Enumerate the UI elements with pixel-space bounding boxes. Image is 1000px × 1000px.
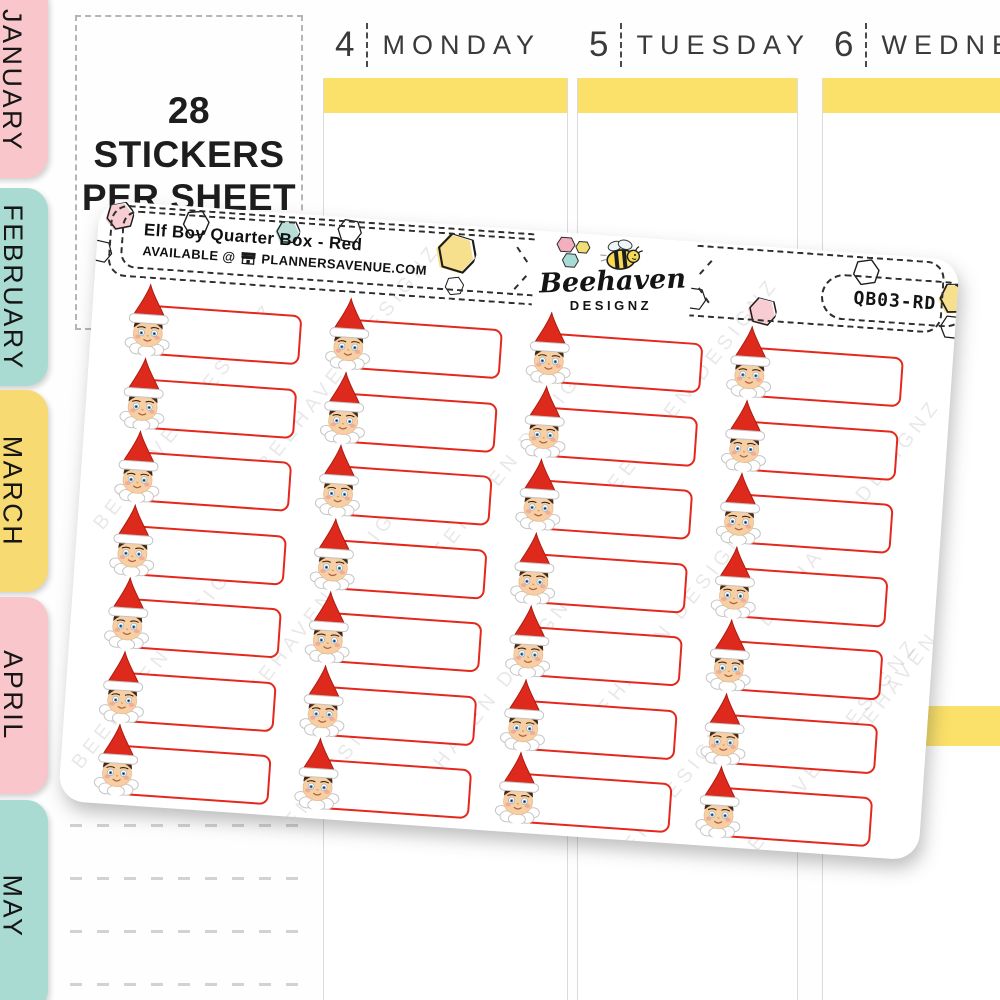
day-name: WEDNESDAY xyxy=(881,30,1000,61)
elf-boy-icon xyxy=(299,589,358,665)
elf-boy-icon xyxy=(695,691,754,767)
month-tab-february: FEBRUARY xyxy=(0,188,48,386)
day-header-wednesday: 6WEDNESDAY xyxy=(834,22,1000,68)
month-tab-label: MARCH xyxy=(0,435,28,547)
sticker xyxy=(505,530,696,615)
ruled-line xyxy=(70,983,312,986)
sticker xyxy=(114,355,305,440)
elf-boy-icon xyxy=(119,282,178,358)
day-name: MONDAY xyxy=(382,30,541,61)
elf-boy-icon xyxy=(304,516,363,592)
day-number: 4 xyxy=(335,25,355,65)
month-tab-label: JANUARY xyxy=(0,8,28,151)
sticker xyxy=(289,736,480,821)
elf-boy-icon xyxy=(320,296,379,372)
elf-boy-icon xyxy=(690,764,749,840)
sticker xyxy=(99,575,290,660)
brand-sub-text: DESIGNZ xyxy=(532,298,690,313)
elf-boy-icon xyxy=(289,736,348,812)
elf-boy-icon xyxy=(315,369,374,445)
day-highlight-bar xyxy=(823,78,1000,113)
sticker xyxy=(721,324,912,409)
brand-script-text: Beehaven xyxy=(525,263,700,300)
elf-boy-icon xyxy=(515,383,574,459)
elf-boy-icon xyxy=(89,722,148,798)
sticker xyxy=(705,544,896,629)
sticker xyxy=(294,663,485,748)
elf-boy-icon xyxy=(711,471,770,547)
day-name: TUESDAY xyxy=(636,30,811,61)
day-header-divider xyxy=(366,23,368,67)
month-tab-label: MAY xyxy=(0,874,27,938)
sku-text: QB03-RD xyxy=(853,287,937,314)
sticker xyxy=(695,691,886,776)
elf-boy-icon xyxy=(705,544,764,620)
ruled-line xyxy=(70,824,312,827)
day-highlight-bar xyxy=(578,78,797,113)
sticker xyxy=(495,677,686,762)
month-tab-january: JANUARY xyxy=(0,0,48,178)
elf-boy-icon xyxy=(716,397,775,473)
elf-boy-icon xyxy=(310,443,369,519)
sticker xyxy=(94,649,285,734)
elf-boy-icon xyxy=(94,649,153,725)
elf-boy-icon xyxy=(721,324,780,400)
sticker xyxy=(510,457,701,542)
ruled-line xyxy=(70,930,312,933)
sticker xyxy=(515,383,706,468)
elf-boy-icon xyxy=(500,603,559,679)
planner-product-scene: 4MONDAY5TUESDAY6WEDNESDAY 28 STICKERS PE… xyxy=(0,0,1000,1000)
elf-boy-icon xyxy=(700,617,759,693)
ruled-line xyxy=(70,877,312,880)
sticker xyxy=(500,603,691,688)
elf-boy-icon xyxy=(109,429,168,505)
month-tab-april: APRIL xyxy=(0,597,48,794)
sticker xyxy=(700,617,891,702)
sticker xyxy=(711,471,902,556)
sticker xyxy=(89,722,280,807)
day-header-monday: 4MONDAY xyxy=(335,22,541,68)
elf-boy-icon xyxy=(510,457,569,533)
sticker xyxy=(304,516,495,601)
month-tab-march: MARCH xyxy=(0,390,48,592)
sticker xyxy=(310,443,501,528)
sticker-sheet: BEEHAVEN DESIGNZBEEHAVEN DESIGNZBEEHAVEN… xyxy=(58,200,960,861)
day-header-tuesday: 5TUESDAY xyxy=(589,22,811,68)
elf-boy-icon xyxy=(505,530,564,606)
elf-boy-icon xyxy=(99,575,158,651)
month-tab-label: APRIL xyxy=(0,650,28,741)
sticker xyxy=(490,750,681,835)
sticker-count-line1: 28 STICKERS xyxy=(77,89,301,176)
sticker xyxy=(320,296,511,381)
availability-prefix: AVAILABLE @ xyxy=(142,243,236,264)
day-number: 6 xyxy=(834,25,854,65)
month-tab-label: FEBRUARY xyxy=(0,204,28,371)
sticker xyxy=(690,764,881,849)
day-highlight-bar xyxy=(324,78,567,113)
elf-boy-icon xyxy=(104,502,163,578)
sticker xyxy=(716,397,907,482)
sticker xyxy=(109,429,300,514)
sticker xyxy=(315,369,506,454)
elf-boy-icon xyxy=(294,663,353,739)
elf-boy-icon xyxy=(495,677,554,753)
day-number: 5 xyxy=(589,25,609,65)
sticker xyxy=(299,589,490,674)
elf-boy-icon xyxy=(114,355,173,431)
day-header-divider xyxy=(620,23,622,67)
sticker xyxy=(119,282,310,367)
storefront-icon xyxy=(240,251,257,265)
month-tab-may: MAY xyxy=(0,800,48,1000)
day-header-divider xyxy=(865,23,867,67)
elf-boy-icon xyxy=(490,750,549,826)
elf-boy-icon xyxy=(520,310,579,386)
sticker xyxy=(104,502,295,587)
